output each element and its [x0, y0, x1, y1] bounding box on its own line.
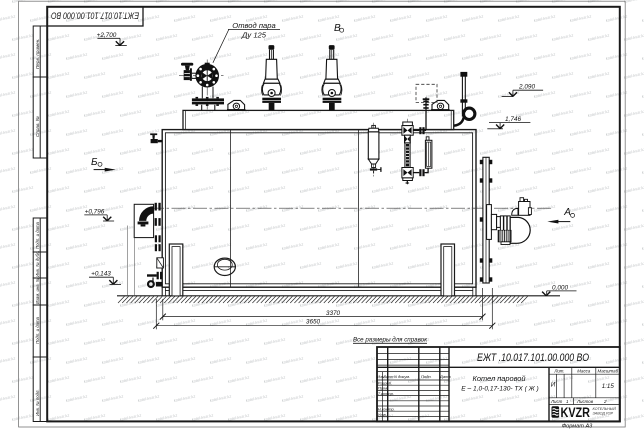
svg-text:3370: 3370	[326, 310, 341, 317]
svg-text:Листов: Листов	[576, 399, 594, 404]
svg-text:ЕЖТ .10.017.101.00.000 ВО: ЕЖТ .10.017.101.00.000 ВО	[477, 352, 589, 364]
svg-text:Подп.: Подп.	[421, 374, 432, 379]
svg-text:Котел паровой: Котел паровой	[472, 374, 525, 383]
svg-text:Пров.: Пров.	[378, 386, 389, 391]
svg-text:Инв. № дубл.: Инв. № дубл.	[35, 251, 40, 277]
svg-text:2: 2	[603, 399, 607, 404]
svg-text:Е – 1,0-0,17-130- ТХ ( Ж ): Е – 1,0-0,17-130- ТХ ( Ж )	[461, 386, 539, 393]
svg-text:Лист: Лист	[382, 374, 394, 379]
svg-text:Ду 125: Ду 125	[241, 30, 267, 39]
svg-text:+0,796: +0,796	[85, 208, 105, 215]
svg-text:KVZR: KVZR	[561, 405, 591, 420]
svg-text:3650: 3650	[306, 319, 321, 326]
svg-text:И: И	[551, 382, 556, 389]
svg-text:1:15: 1:15	[602, 383, 615, 390]
svg-text:Формат А3: Формат А3	[562, 423, 593, 429]
svg-text:ЕЖТ.10.017.101.00.000 ВО: ЕЖТ.10.017.101.00.000 ВО	[51, 9, 139, 20]
svg-text:В: В	[334, 23, 341, 34]
svg-text:Взам. инв. №: Взам. инв. №	[35, 277, 40, 304]
svg-text:+2,700: +2,700	[97, 32, 117, 39]
svg-text:ЗАВОД РЗР: ЗАВОД РЗР	[593, 412, 614, 416]
svg-text:Дата: Дата	[439, 374, 451, 379]
svg-text:Справ. №: Справ. №	[35, 116, 40, 137]
svg-text:2,090: 2,090	[518, 84, 535, 91]
svg-text:Масса: Масса	[577, 369, 591, 374]
svg-text:КОТЕЛЬНЫЙ: КОТЕЛЬНЫЙ	[593, 407, 617, 411]
svg-text:Лист: Лист	[550, 399, 563, 404]
svg-text:А: А	[563, 207, 571, 218]
svg-text:Н.контр.: Н.контр.	[378, 407, 395, 412]
svg-text:Отвод пара: Отвод пара	[232, 21, 275, 30]
svg-text:Лит.: Лит.	[553, 369, 564, 374]
svg-text:+0,143: +0,143	[91, 271, 111, 278]
svg-text:N докум.: N докум.	[394, 374, 410, 379]
svg-text:Подп. и дата: Подп. и дата	[35, 316, 40, 344]
svg-text:Инв. № подл.: Инв. № подл.	[35, 389, 40, 416]
svg-text:Перв. примен.: Перв. примен.	[35, 38, 40, 69]
svg-text:Утв.: Утв.	[378, 412, 387, 417]
svg-text:0,000: 0,000	[552, 284, 568, 291]
svg-text:Все размеры для справок: Все размеры для справок	[353, 337, 428, 344]
svg-text:Масштаб: Масштаб	[598, 369, 619, 374]
svg-text:Т.контр.: Т.контр.	[378, 391, 394, 396]
svg-text:Б: Б	[91, 157, 98, 168]
svg-text:Подп. и дата: Подп. и дата	[35, 221, 40, 249]
svg-text:1,746: 1,746	[505, 116, 521, 123]
